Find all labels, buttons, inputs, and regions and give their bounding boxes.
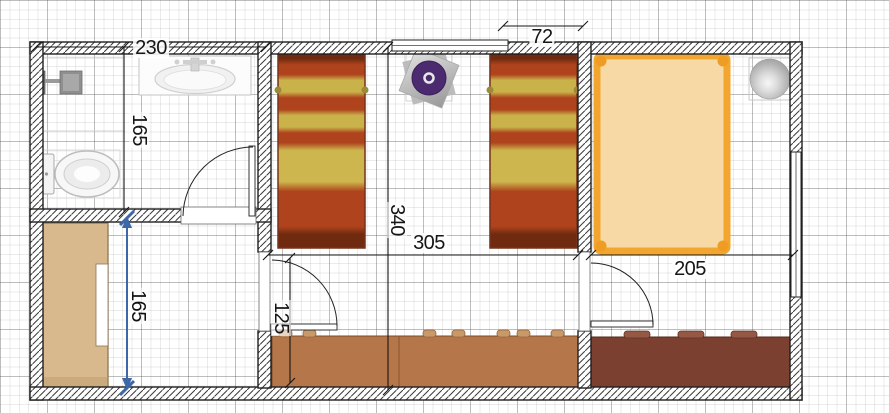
wall-partition-b-upper [578,42,591,252]
sink-counter[interactable] [139,56,251,95]
wall-partition-a-lower [258,331,271,388]
dimension-label-middle-room-width[interactable]: 305 [411,233,447,253]
toilet[interactable] [38,150,120,198]
floor-plan-canvas[interactable]: 230 72 165 340 305 205 125 165 [0,0,889,413]
dimension-label-storeroom-depth[interactable]: 165 [128,288,148,324]
wall-partition-b-lower [578,331,591,388]
dimension-label-bathroom-depth[interactable]: 165 [129,112,149,148]
window-right[interactable] [791,152,801,297]
shower-fixture[interactable] [38,58,124,131]
dimension-label-bathroom-width[interactable]: 230 [133,38,169,58]
dimension-label-doorway[interactable]: 125 [271,300,291,336]
dimension-label-window-offset[interactable]: 72 [529,27,554,47]
ball-lamp[interactable] [749,58,791,100]
single-bed-1[interactable] [275,53,369,248]
window-top[interactable] [392,40,508,51]
sideboard-left[interactable] [272,330,578,388]
sideboard-right[interactable] [590,331,793,387]
double-bed[interactable] [596,56,729,252]
door-bathroom[interactable] [181,146,256,224]
wardrobe[interactable] [41,223,108,387]
door-right-room[interactable] [579,252,653,331]
plan-drawing [0,0,889,413]
round-table[interactable] [399,48,459,108]
dimension-label-rooms-depth[interactable]: 340 [387,202,407,238]
wall-bottom [30,387,802,400]
dimension-label-right-room-width[interactable]: 205 [672,259,708,279]
single-bed-2[interactable] [487,53,581,248]
